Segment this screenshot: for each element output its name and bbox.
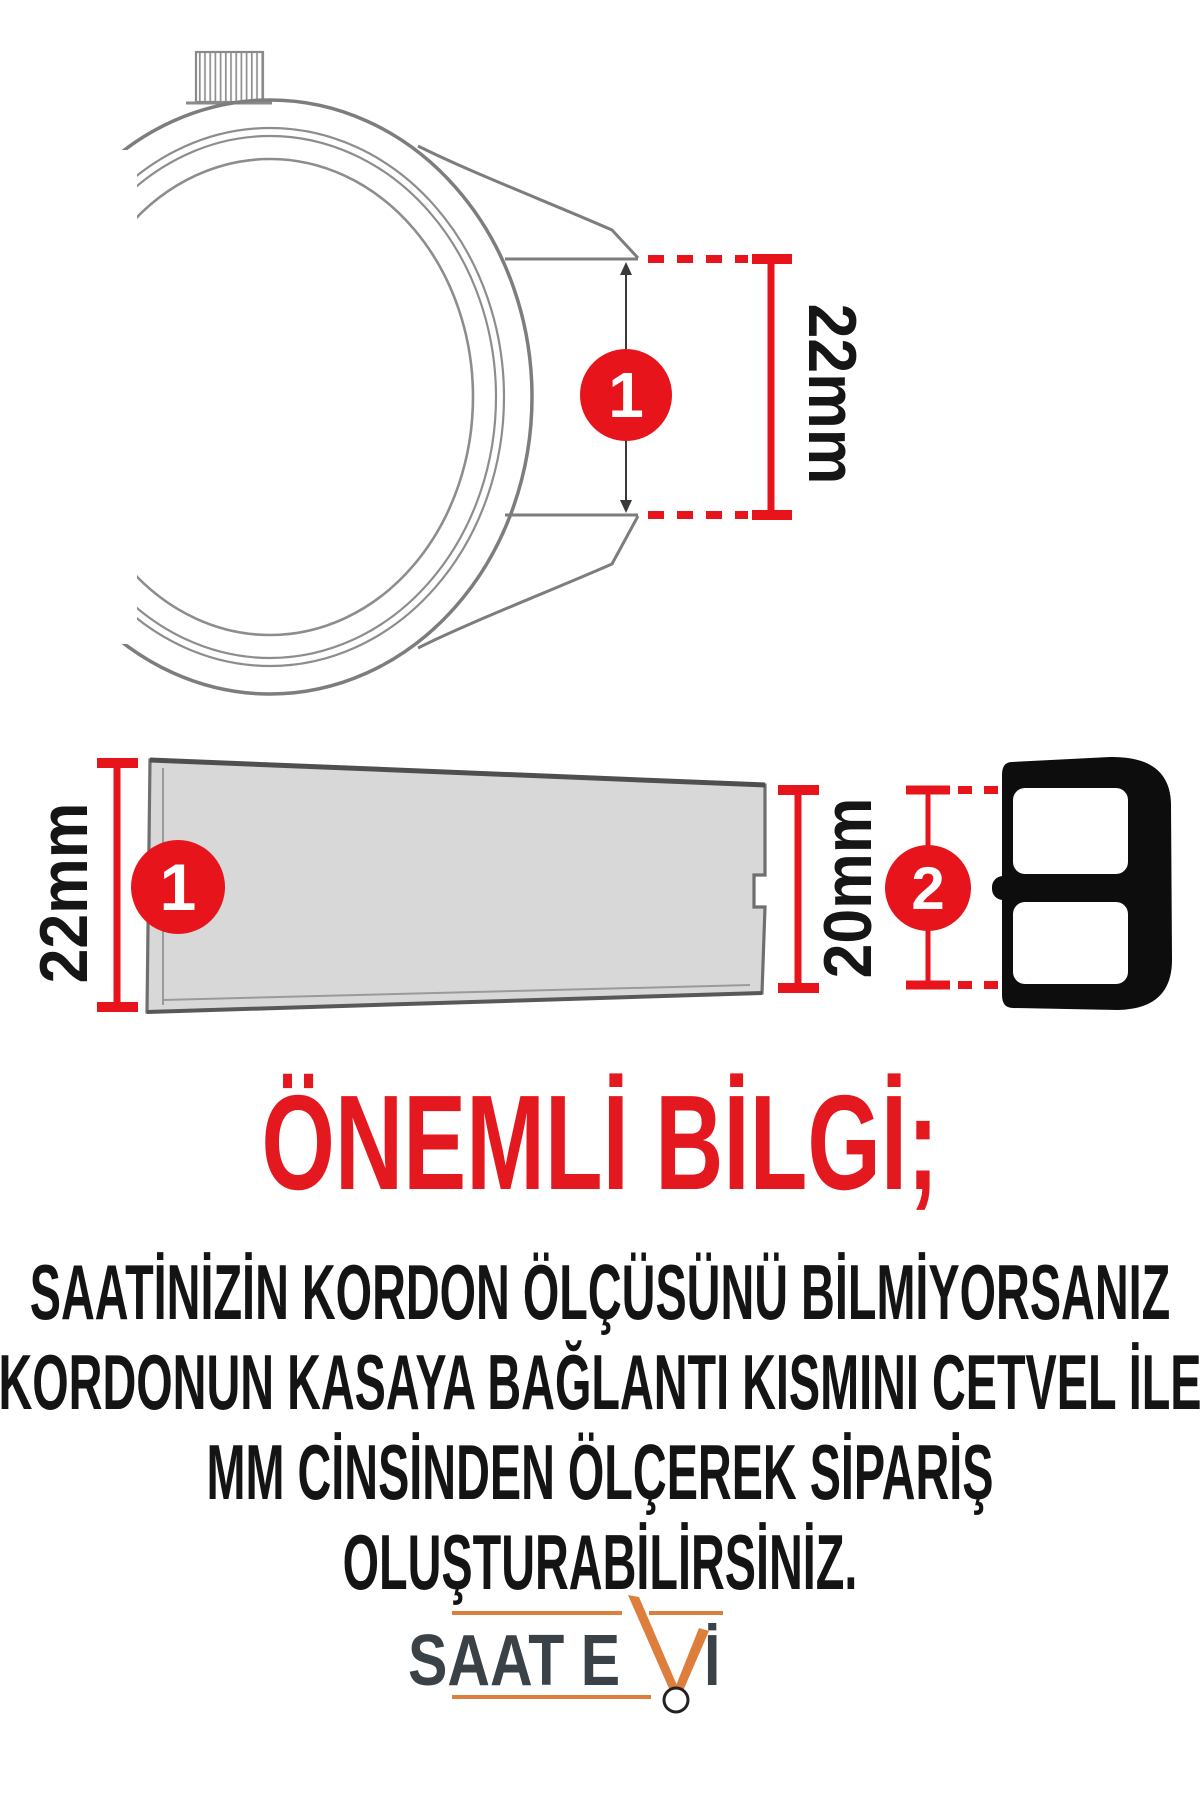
strap-body [147,760,765,1012]
notice-line-3: MM CİNSİNDEN ÖLÇEREK SİPARİŞ [207,1427,994,1517]
strap-drawing [147,760,765,1012]
watch-hand-long-icon [628,1595,679,1693]
buckle-prong [992,876,1134,900]
step-badge-2-buckle: 2 [885,845,971,931]
left-crop-mask [0,150,137,644]
strap-width-label: 22mm [25,803,103,984]
notice-line-4: OLUŞTURABİLİRSİNİZ. [343,1517,858,1607]
notice-heading: ÖNEMLİ BİLGİ; [261,1078,938,1208]
watch-wheel-icon [664,1688,688,1712]
buckle-width-label: 20mm [809,798,887,979]
notice-line-2: KORDONUN KASAYA BAĞLANTI KISMINI CETVEL … [0,1337,1200,1427]
buckle-window-top [1013,788,1128,874]
buckle-window-bottom [1013,902,1128,984]
crown-icon [196,52,263,102]
watch-strap-measurement-infographic: 1 1 2 22mm 22mm 20mm ÖNEMLİ BİLGİ; SAATİ… [0,0,1200,1800]
step-badge-1-strap: 1 [131,840,225,934]
buckle-drawing [992,757,1172,1010]
notice-line-1: SAATİNİZİN KORDON ÖLÇÜSÜNÜ BİLMİYORSANIZ [30,1247,1171,1337]
lug-width-label: 22mm [793,304,871,485]
brand-logo-text-left: SAAT E [408,1634,620,1688]
brand-logo-text-right: İ [704,1634,720,1688]
watch-case-drawing [0,52,638,694]
arrow-up-icon [620,262,632,275]
notice-body: SAATİNİZİN KORDON ÖLÇÜSÜNÜ BİLMİYORSANIZ… [0,1247,1200,1607]
bottom-lug [418,516,638,648]
step-badge-1-lug: 1 [580,349,672,441]
arrow-down-icon [620,500,632,513]
